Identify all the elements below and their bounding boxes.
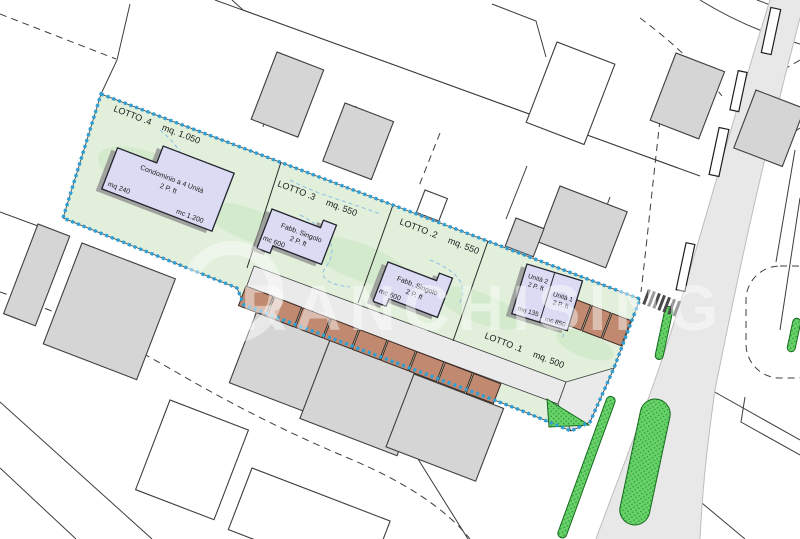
site-plan-drawing: Condominio a 4 Unità 2 P. ft mq 240 mc 1… (0, 0, 800, 539)
watermark-text: FRANCHISING (194, 272, 726, 344)
site-plan-svg: Condominio a 4 Unità 2 P. ft mq 240 mc 1… (0, 0, 800, 539)
